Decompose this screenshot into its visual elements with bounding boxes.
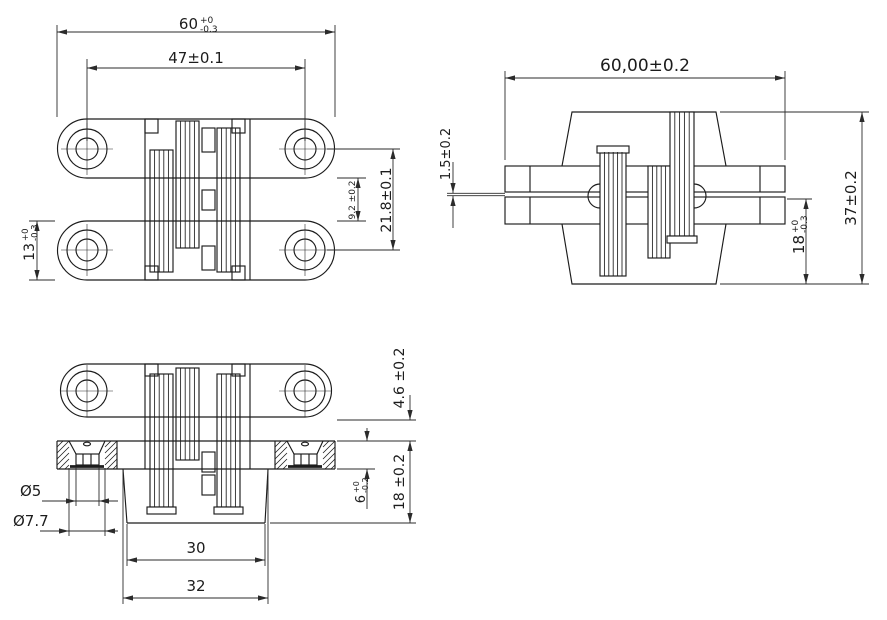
countersunk-screw-left — [69, 441, 105, 467]
hinge-arm-outline — [61, 364, 332, 417]
link-cap — [147, 507, 176, 514]
housing-corner-step — [232, 266, 245, 280]
link-spacer — [202, 190, 215, 210]
dim-front-arm-height: 13 — [22, 243, 38, 261]
link-cap — [214, 507, 243, 514]
leaf-plate-lower — [505, 197, 785, 224]
dim-front-width: 60 — [179, 15, 198, 33]
screw-head — [76, 454, 99, 465]
dim-front-arm-gap: 9.2 ±0.2 — [348, 180, 358, 219]
mortise-opening — [146, 442, 249, 468]
mortise-body-side — [123, 469, 127, 523]
hinge-arm-bottom-outline — [57, 221, 334, 280]
pivot-pin — [588, 184, 600, 208]
countersink-cone — [69, 441, 105, 454]
link-stack — [217, 128, 240, 272]
dim-front-arm-height-tol-lower: -0.3 — [31, 224, 41, 241]
dim-section-mortise-bottom: 30 — [186, 539, 205, 557]
dimension-arrows — [34, 29, 864, 600]
mortise-body-upper — [562, 112, 726, 166]
dim-section-mortise-top: 32 — [186, 577, 205, 595]
dim-front-width-tol-lower: -0.3 — [200, 25, 218, 35]
dim-section-plate-thickness-tol-upper: +0 — [352, 481, 361, 493]
link-stack — [150, 150, 173, 272]
screw-slot-top — [84, 442, 91, 446]
screw-slot-top — [302, 442, 309, 446]
mortise-body-lower — [562, 224, 726, 284]
dim-section-protrusion: 4.6 ±0.2 — [392, 348, 408, 409]
dim-top-leaf-depth: 18 — [790, 235, 808, 254]
hinge-arm-top-outline — [57, 119, 334, 178]
link-stack — [176, 121, 199, 248]
countersunk-screw-right — [287, 441, 323, 467]
link-stack — [670, 112, 694, 236]
countersink-cone — [287, 441, 323, 454]
link-spacer — [202, 475, 215, 495]
dim-section-screw-hole: Ø5 — [20, 482, 41, 500]
dim-top-leaf-offset: 1.5±0.2 — [439, 128, 454, 180]
dim-section-plate-thickness: 6 — [354, 495, 369, 503]
dimension-lines — [29, 25, 869, 604]
centerlines — [61, 123, 331, 417]
top-view — [505, 112, 785, 284]
link-stack — [648, 166, 670, 258]
link-cap — [597, 146, 629, 153]
dim-top-width: 60,00±0.2 — [600, 56, 690, 76]
leaf-plate-upper — [505, 166, 785, 192]
pivot-pin — [694, 184, 706, 208]
housing-corner-step — [145, 266, 158, 280]
link-spacer — [202, 246, 215, 270]
dim-top-total-height: 37±0.2 — [842, 170, 860, 226]
hinge-technical-drawing: 60+0-0.347±0.121.8±0.19.2 ±0.213+0-0.360… — [0, 0, 887, 620]
link-spacer — [202, 128, 215, 152]
housing-corner-step — [232, 119, 245, 133]
dim-front-hole-row-spacing: 21.8±0.1 — [379, 167, 395, 232]
housing-corner-step — [145, 119, 158, 133]
drawing-sheet: 60+0-0.347±0.121.8±0.19.2 ±0.213+0-0.360… — [0, 0, 887, 620]
link-cap — [667, 236, 697, 243]
dim-section-recess: 18 ±0.2 — [392, 454, 408, 510]
dimension-labels: 60+0-0.347±0.121.8±0.19.2 ±0.213+0-0.360… — [13, 15, 860, 595]
dim-front-hole-spacing: 47±0.1 — [168, 49, 224, 67]
dim-section-plate-thickness-tol-lower: -0.2 — [361, 477, 370, 493]
front-view — [57, 119, 334, 280]
screw-head — [294, 454, 317, 465]
dim-top-leaf-depth-tol-lower: -0.3 — [800, 215, 810, 233]
dim-front-arm-height-tol-upper: +0 — [21, 228, 31, 241]
dim-section-screw-head: Ø7.7 — [13, 512, 49, 530]
